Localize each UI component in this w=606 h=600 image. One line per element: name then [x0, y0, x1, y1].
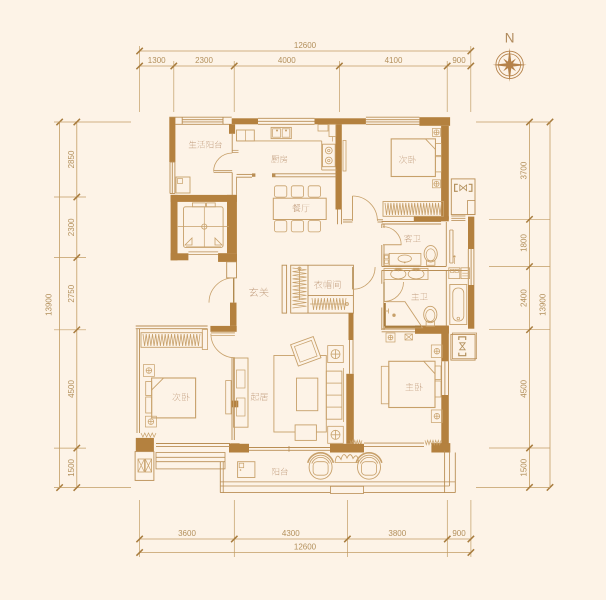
svg-text:1300: 1300	[148, 56, 166, 65]
svg-text:4500: 4500	[67, 380, 76, 398]
svg-text:2300: 2300	[67, 218, 76, 236]
svg-text:4300: 4300	[282, 529, 300, 538]
svg-text:4500: 4500	[520, 379, 529, 397]
svg-text:13900: 13900	[539, 293, 548, 316]
svg-text:900: 900	[452, 56, 466, 65]
svg-text:1500: 1500	[67, 458, 76, 476]
svg-text:900: 900	[452, 529, 466, 538]
svg-text:13900: 13900	[45, 293, 54, 316]
svg-text:4100: 4100	[385, 56, 403, 65]
svg-text:2850: 2850	[67, 150, 76, 168]
svg-text:12600: 12600	[294, 41, 317, 50]
svg-text:2300: 2300	[195, 56, 213, 65]
svg-text:3600: 3600	[178, 529, 196, 538]
svg-text:3700: 3700	[520, 161, 529, 179]
svg-text:2750: 2750	[67, 284, 76, 302]
svg-text:N: N	[505, 31, 515, 46]
svg-text:1800: 1800	[520, 234, 529, 252]
svg-text:4000: 4000	[278, 56, 296, 65]
svg-text:1500: 1500	[520, 458, 529, 476]
svg-text:2400: 2400	[520, 289, 529, 307]
svg-text:3800: 3800	[388, 529, 406, 538]
svg-text:12600: 12600	[294, 543, 317, 552]
